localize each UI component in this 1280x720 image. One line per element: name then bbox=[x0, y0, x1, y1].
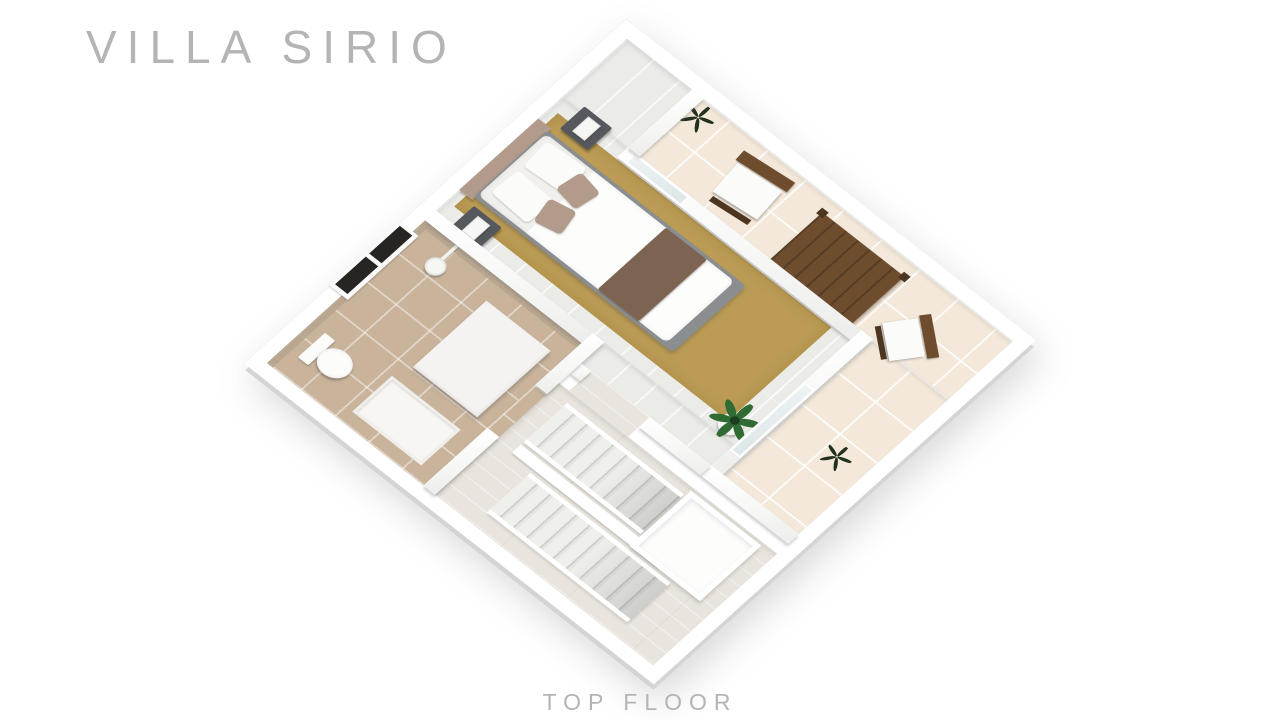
page: { "header": { "title": "VILLA SIRIO" }, … bbox=[0, 0, 1280, 720]
floor-label: TOP FLOOR bbox=[0, 689, 1280, 716]
floor-plan-wrapper bbox=[0, 0, 1280, 720]
terrace-chair bbox=[872, 314, 939, 365]
chair-seat bbox=[882, 318, 925, 361]
floor-plan bbox=[244, 20, 1035, 685]
